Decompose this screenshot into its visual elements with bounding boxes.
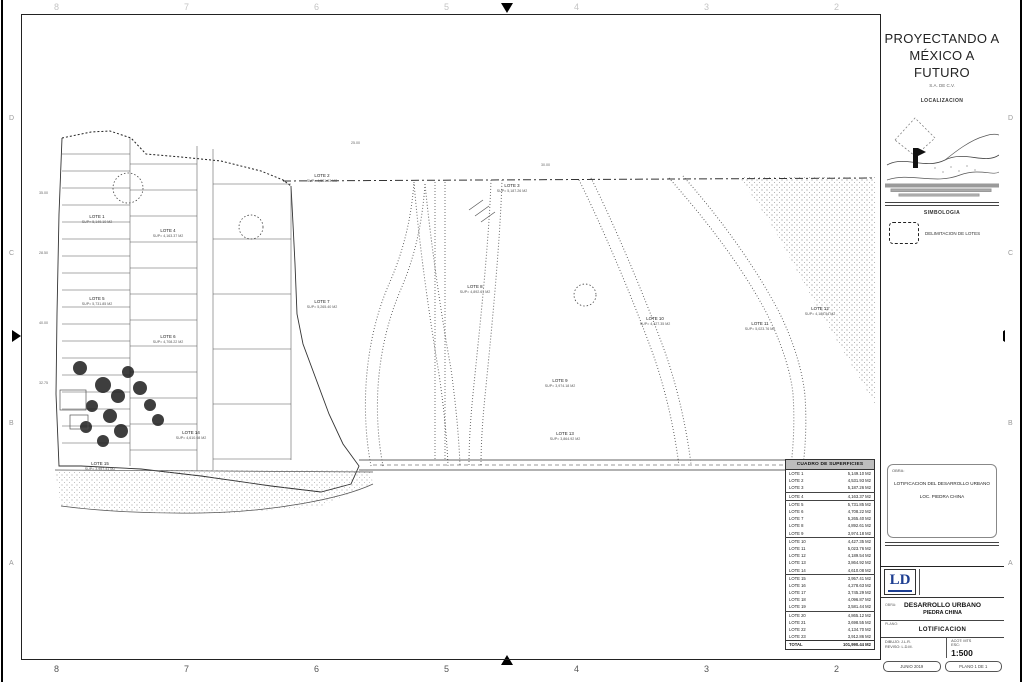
superficies-table-row: LOTE 64,708.22 M2 [786, 508, 875, 515]
location-map [885, 110, 999, 200]
plan-lot-area: SUP= 4,189.54 M2 [805, 312, 835, 316]
dimension-text: 28.50 [39, 251, 48, 255]
superficies-table-row: LOTE 75,265.40 M2 [786, 515, 875, 522]
logo-row: LD [881, 567, 1004, 598]
sheet-number-box: PLANO 1 DE 1 [945, 661, 1003, 672]
stipple-area-right [739, 176, 875, 404]
superficies-table-row: LOTE 124,189.54 M2 [786, 552, 875, 559]
superficies-table-row: LOTE 133,864.92 M2 [786, 559, 875, 566]
superficies-table-row: LOTE 144,610.08 M2 [786, 566, 875, 574]
culdesac-circle [239, 215, 263, 239]
grid-letter-right: D [1008, 115, 1013, 122]
grid-number-bottom: 3 [704, 664, 709, 674]
superficies-table-row: LOTE 213,698.55 M2 [786, 619, 875, 626]
dimension-text: 30.00 [541, 163, 550, 167]
grid-letter-left: D [9, 115, 14, 122]
scale-value: 1:500 [951, 648, 1002, 658]
grid-letter-left: B [9, 420, 14, 427]
obra-line2: LOC. PIEDRA CHINA [892, 494, 992, 499]
grid-number-top: 7 [184, 2, 189, 12]
grid-letter-right: C [1008, 250, 1013, 257]
company-subtitle: S.A. DE C.V. [881, 83, 1003, 88]
grid-number-top: 6 [314, 2, 319, 12]
superficies-table-row: LOTE 153,957.41 M2 [786, 574, 875, 582]
plan-lot-area: SUP= 4,610.08 M2 [176, 436, 206, 440]
superficies-table-row: LOTE 173,745.29 M2 [786, 589, 875, 596]
fecha-box: JUNIO 2019 [883, 661, 941, 672]
grid-number-bottom: 5 [444, 664, 449, 674]
superficies-table-row: LOTE 104,427.35 M2 [786, 537, 875, 545]
plan-lot-name: LOTE 15 [91, 461, 109, 466]
sheet-edge-right [1020, 0, 1022, 682]
localizacion-title: LOCALIZACION [881, 98, 1003, 104]
superficies-table-row: LOTE 93,974.18 M2 [786, 530, 875, 538]
plan-lot-name: LOTE 4 [160, 228, 176, 233]
superficies-table-row: LOTE 24,531.93 M2 [786, 477, 875, 484]
reviso-line: REVISO: L.D.M. [885, 645, 946, 650]
superficies-table: CUADRO DE SUPERFICIES LOTE 15,149.10 M2L… [785, 459, 875, 650]
plan-lot-name: LOTE 9 [552, 378, 568, 383]
plan-lot-name: LOTE 13 [556, 431, 574, 436]
center-mark-left-icon [12, 330, 21, 342]
plan-lot-area: SUP= 5,149.10 M2 [82, 220, 112, 224]
plan-lot-name: LOTE 6 [160, 334, 176, 339]
grid-number-top: 5 [444, 2, 449, 12]
plan-lot-name: LOTE 3 [504, 183, 520, 188]
company-info-lines [919, 569, 1002, 595]
plano-label: PLANO: [885, 622, 898, 626]
grid-letter-left: A [9, 560, 14, 567]
divider-double-rule [885, 542, 999, 546]
title-block: PROYECTANDO A MÉXICO A FUTURO S.A. DE C.… [880, 14, 1003, 660]
superficies-table-row: LOTE 55,731.85 M2 [786, 500, 875, 508]
superficies-table-row: TOTAL101,990.44 M2 [786, 641, 875, 649]
grid-number-bottom: 7 [184, 664, 189, 674]
plan-lot-name: LOTE 2 [314, 173, 330, 178]
block-outline-top [62, 131, 291, 186]
grid-number-bottom: 4 [574, 664, 579, 674]
sheet-edge-left [1, 0, 3, 682]
superficies-table-row: LOTE 35,187.26 M2 [786, 484, 875, 492]
plan-lot-name: LOTE 11 [751, 321, 769, 326]
superficies-table-title: CUADRO DE SUPERFICIES [786, 460, 875, 470]
plan-lot-area: SUP= 4,427.35 M2 [640, 322, 670, 326]
plan-lot-name: LOTE 14 [182, 430, 200, 435]
obra-notes-box: OBRA: LOTIFICACION DEL DESARROLLO URBANO… [887, 464, 997, 538]
plan-lot-area: SUP= 5,187.26 M2 [497, 189, 527, 193]
project-subtitle: PIEDRA CHINA [881, 610, 1004, 616]
plan-lot-name: LOTE 5 [89, 296, 105, 301]
road-bands [365, 176, 805, 466]
plan-lot-area: SUP= 5,731.85 M2 [82, 302, 112, 306]
superficies-table-row: LOTE 84,892.61 M2 [786, 522, 875, 529]
grid-letter-right: A [1008, 560, 1013, 567]
plan-lot-labels: LOTE 1SUP= 5,149.10 M2LOTE 2SUP= 4,531.9… [82, 173, 835, 471]
esc-label: ESC: [951, 643, 960, 647]
superficies-table-row: LOTE 15,149.10 M2 [786, 470, 875, 478]
simbologia-item-label: DELIMITACION DE LOTES [925, 231, 980, 236]
grid-letter-left: C [9, 250, 14, 257]
dimension-text: 25.00 [351, 141, 360, 145]
culdesac-circle [574, 284, 596, 306]
obra-line1: LOTIFICACION DEL DESARROLLO URBANO [892, 481, 992, 486]
obra-label: OBRA: [892, 468, 992, 473]
plan-lot-area: SUP= 4,163.37 M2 [153, 234, 183, 238]
dimension-text: 40.00 [39, 321, 48, 325]
superficies-table-row: LOTE 164,278.63 M2 [786, 582, 875, 589]
grid-number-top: 4 [574, 2, 579, 12]
project-title: DESARROLLO URBANO [881, 602, 1004, 609]
lot-delimitation-symbol [889, 222, 919, 244]
site-plan-drawing: LOTE 1SUP= 5,149.10 M2LOTE 2SUP= 4,531.9… [21, 14, 880, 660]
superficies-table-row: LOTE 224,134.70 M2 [786, 626, 875, 633]
plan-lot-area: SUP= 3,864.92 M2 [550, 437, 580, 441]
tree-cluster [60, 361, 164, 447]
plan-lot-name: LOTE 10 [646, 316, 664, 321]
plan-lot-area: SUP= 5,023.76 M2 [745, 327, 775, 331]
plan-lot-area: SUP= 4,892.61 M2 [460, 290, 490, 294]
grid-letter-right: B [1008, 420, 1013, 427]
plan-lot-name: LOTE 12 [811, 306, 829, 311]
map-site-marker-icon [913, 148, 926, 168]
scale-row: DIBUJO: J.L.R. REVISO: L.D.M. ACOT: MTS … [881, 637, 1004, 658]
plan-lot-name: LOTE 8 [467, 284, 483, 289]
grid-number-top: 3 [704, 2, 709, 12]
superficies-table-row: LOTE 233,912.86 M2 [786, 633, 875, 641]
plan-lot-name: LOTE 1 [89, 214, 105, 219]
dimension-text: 35.00 [39, 191, 48, 195]
divider-double-rule [885, 202, 999, 206]
superficies-table-row: LOTE 204,865.12 M2 [786, 611, 875, 619]
plan-lot-name: LOTE 7 [314, 299, 330, 304]
superficies-table-row: LOTE 184,096.87 M2 [786, 596, 875, 603]
grid-number-top: 2 [834, 2, 839, 12]
grid-number-bottom: 6 [314, 664, 319, 674]
grid-number-bottom: 2 [834, 664, 839, 674]
plan-lot-area: SUP= 4,531.93 M2 [307, 179, 337, 183]
superficies-table-row: LOTE 44,163.37 M2 [786, 492, 875, 500]
grid-number-top: 8 [54, 2, 59, 12]
simbologia-item: DELIMITACION DE LOTES [889, 222, 999, 244]
grid-number-bottom: 8 [54, 664, 59, 674]
plan-lot-area: SUP= 4,708.22 M2 [153, 340, 183, 344]
superficies-table-row: LOTE 115,023.76 M2 [786, 545, 875, 552]
dimension-text: 32.75 [39, 381, 48, 385]
simbologia-title: SIMBOLOGIA [881, 210, 1003, 216]
superficies-table-row: LOTE 193,581.44 M2 [786, 603, 875, 611]
title-block-bottom: LD OBRA: DESARROLLO URBANO PIEDRA CHINA … [881, 566, 1004, 661]
plan-lot-area: SUP= 5,265.40 M2 [307, 305, 337, 309]
company-logo: LD [884, 569, 916, 595]
center-mark-top-icon [501, 3, 513, 13]
company-name: PROYECTANDO A MÉXICO A FUTURO [881, 30, 1003, 81]
plano-title: LOTIFICACION [881, 627, 1004, 633]
proyecto-label: OBRA: [885, 603, 896, 607]
stipple-strip-bottom [55, 470, 373, 514]
plan-lot-area: SUP= 3,957.41 M2 [85, 467, 115, 471]
hatch-marks [469, 200, 495, 222]
plan-lot-area: SUP= 3,974.18 M2 [545, 384, 575, 388]
